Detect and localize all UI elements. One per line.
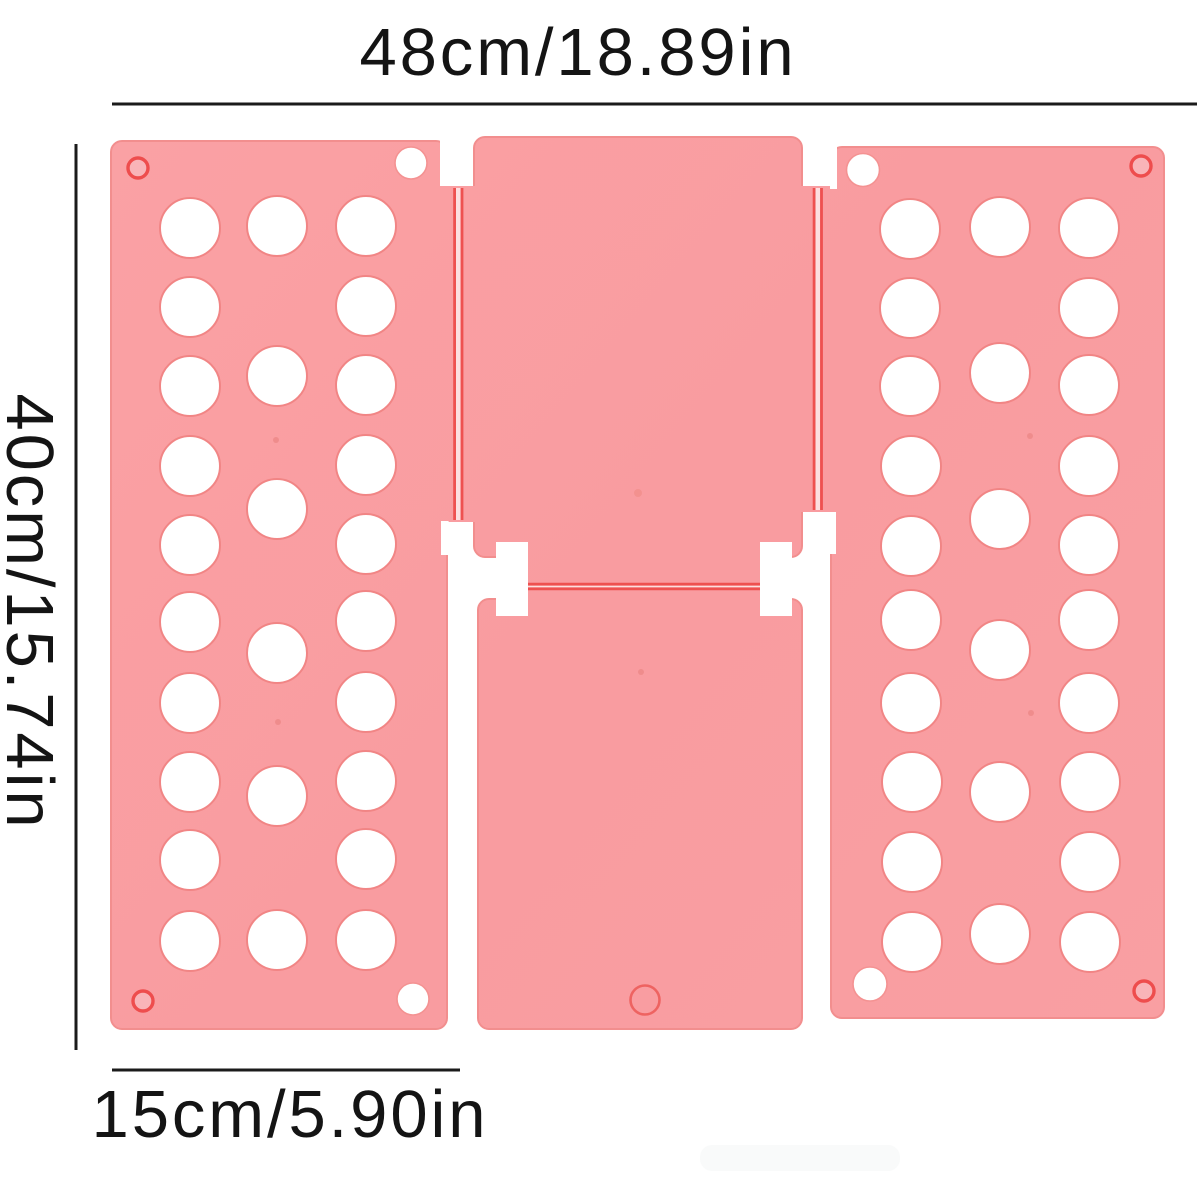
- svg-text:40cm/15.74in: 40cm/15.74in: [0, 393, 67, 830]
- svg-text:48cm/18.89in: 48cm/18.89in: [359, 15, 796, 90]
- svg-text:15cm/5.90in: 15cm/5.90in: [92, 1077, 489, 1152]
